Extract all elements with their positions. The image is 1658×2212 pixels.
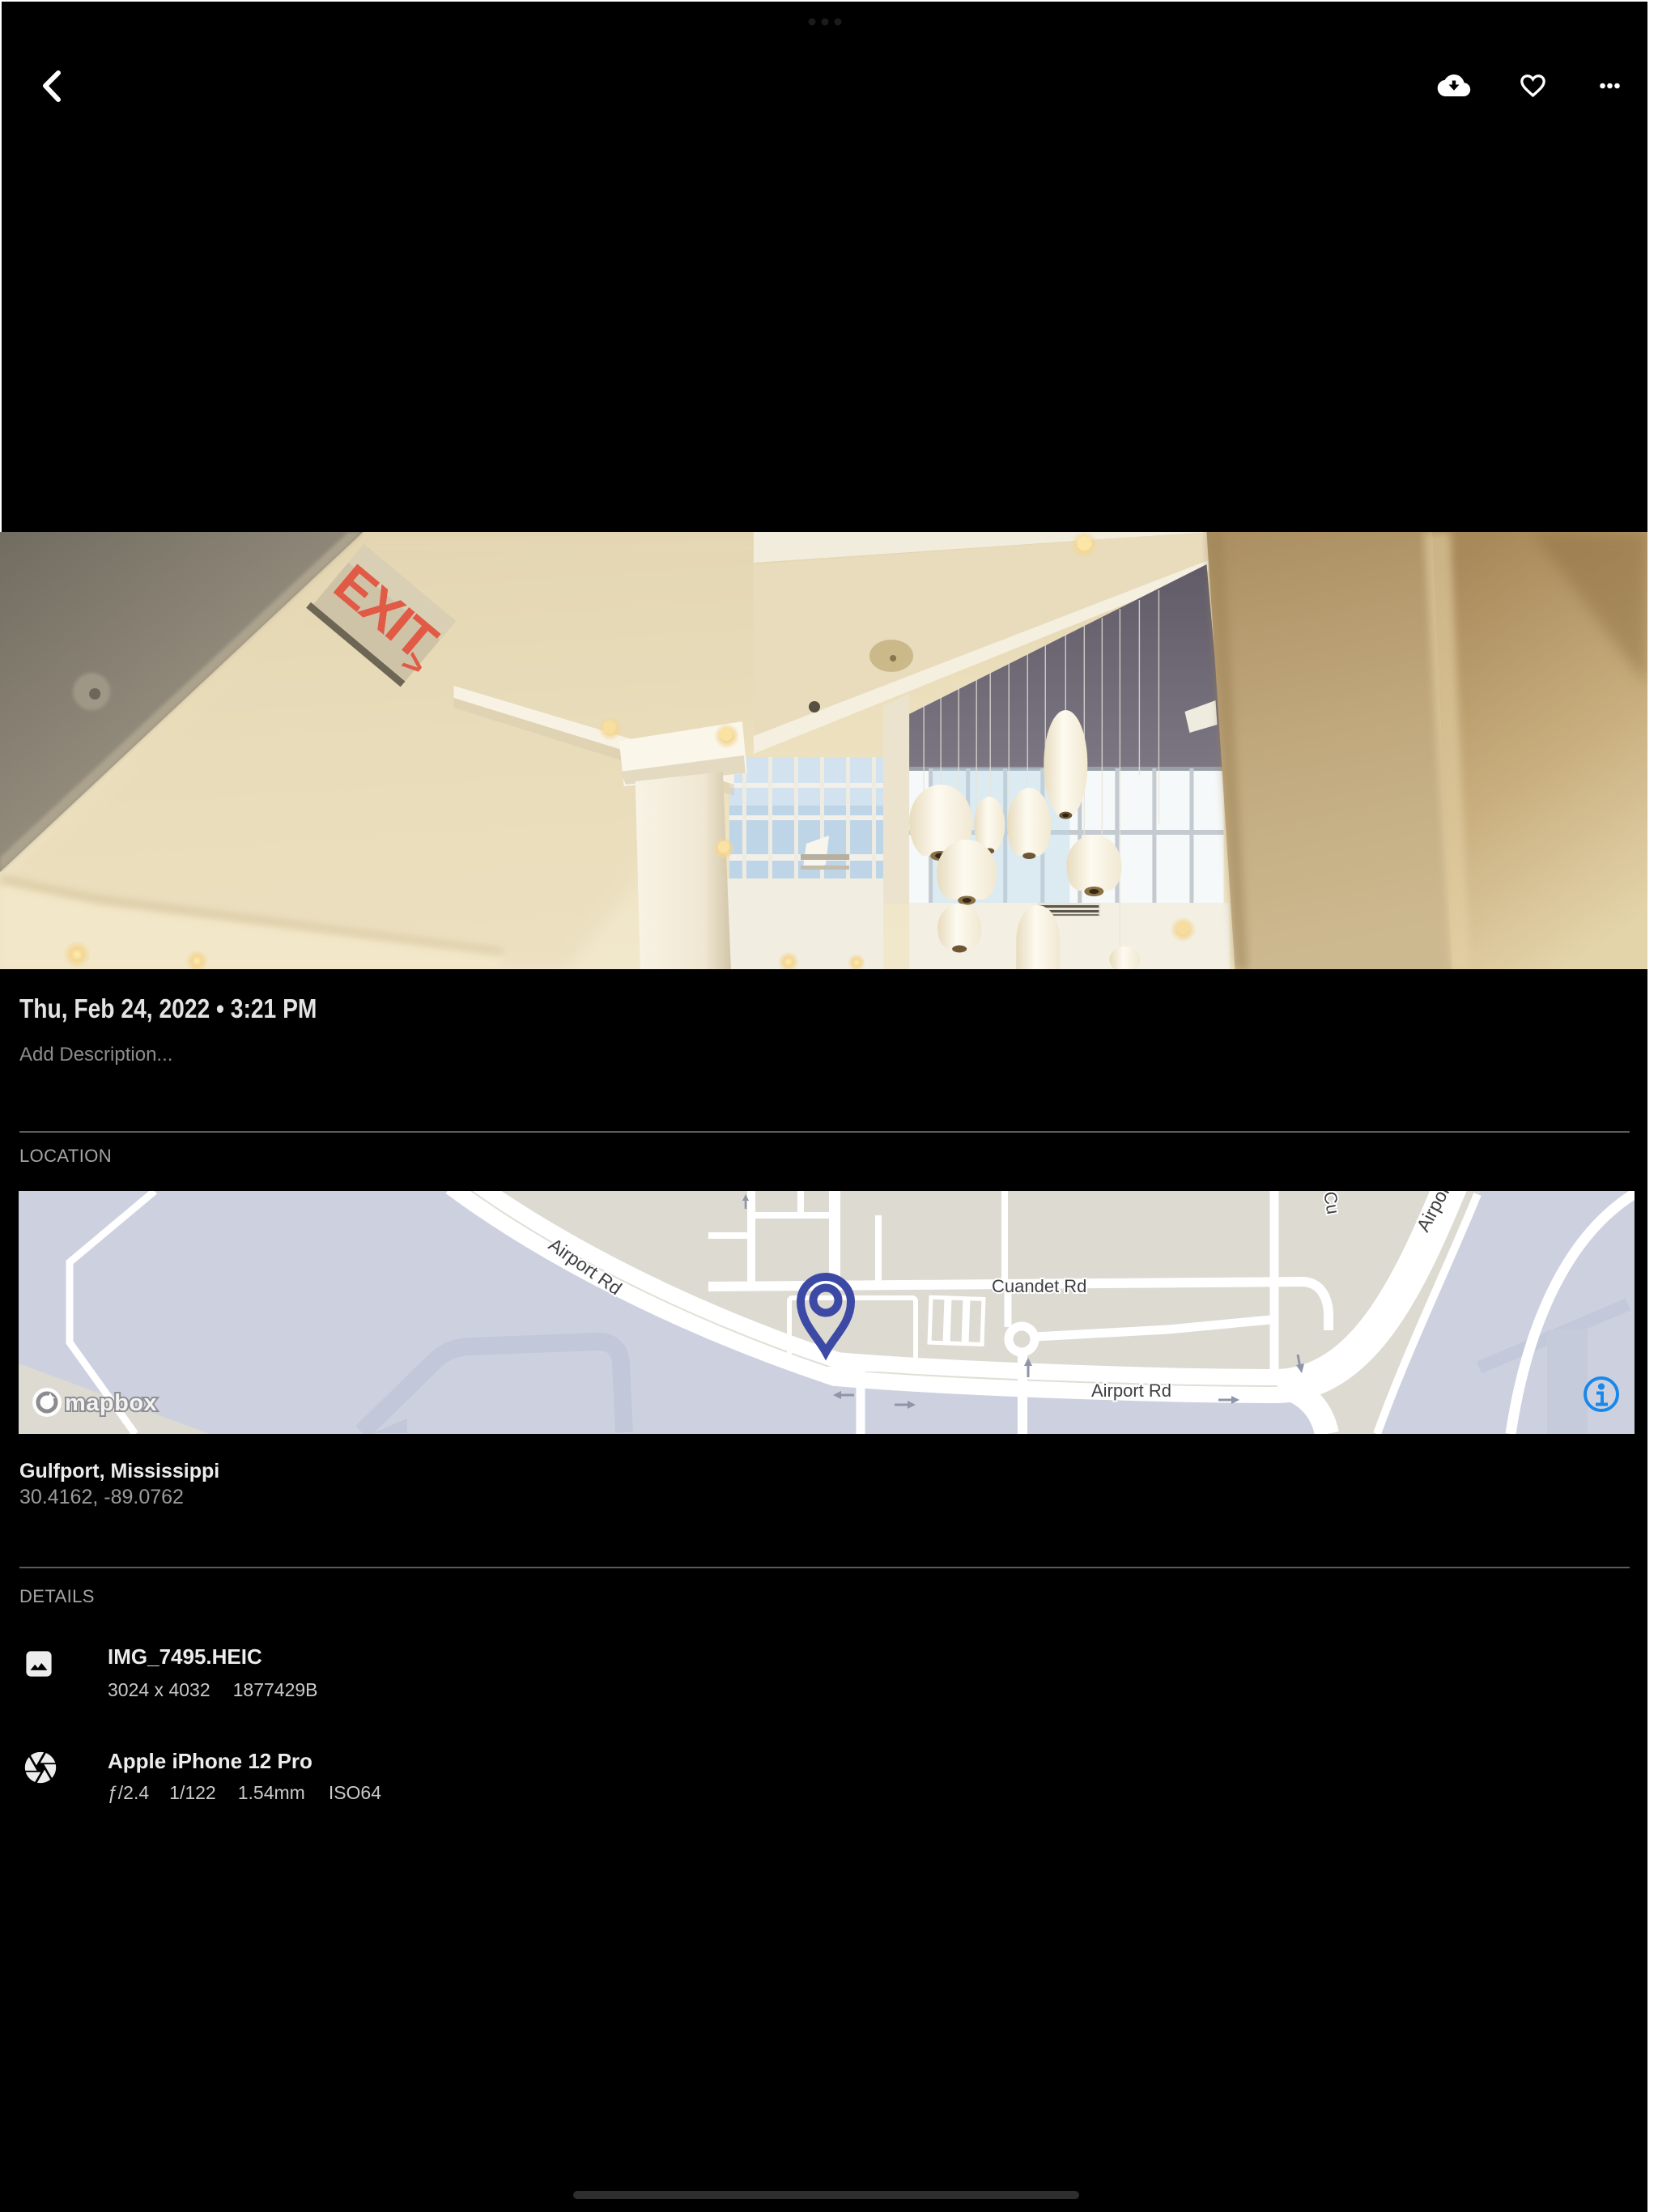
svg-text:Cuandet Rd: Cuandet Rd	[992, 1276, 1086, 1296]
svg-text:mapbox: mapbox	[65, 1390, 157, 1416]
svg-text:Cu: Cu	[1320, 1191, 1344, 1216]
svg-text:Airport Rd: Airport Rd	[1091, 1380, 1171, 1401]
